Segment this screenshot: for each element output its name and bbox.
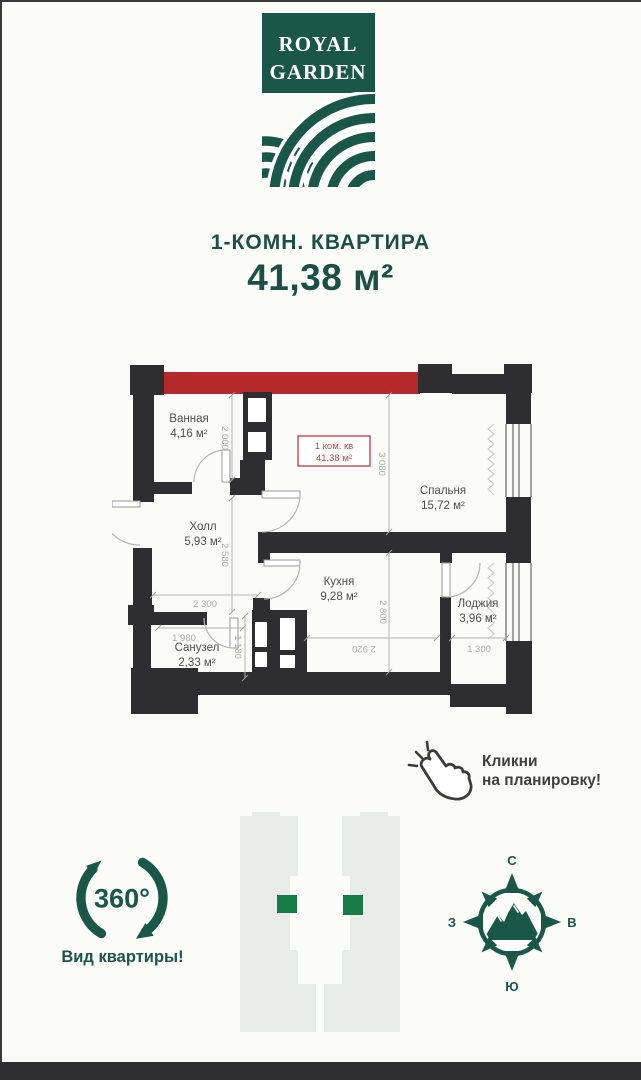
dim-2000: 2 000 xyxy=(219,426,230,450)
view-360-label: Вид квартиры! xyxy=(30,948,215,967)
dim-2580: 2 580 xyxy=(219,543,230,567)
click-hint-line2: на планировку! xyxy=(482,771,601,790)
unit-label-area: 41,38 м² xyxy=(316,453,352,464)
badge-360-text: 360° xyxy=(94,883,150,913)
room-bedroom-name: Спальня xyxy=(420,485,466,497)
view-360-button[interactable]: 360° xyxy=(66,841,178,955)
kitchen-door xyxy=(264,560,300,599)
dim-1180: 1 180 xyxy=(232,635,243,659)
screen-edge-left xyxy=(0,0,2,1080)
floor-plan[interactable]: 1 ком. кв 41,38 м² Ванная 4,16 м² Холл 5… xyxy=(112,358,538,714)
tower-left xyxy=(240,812,316,1032)
apartment-type: 1-КОМН. КВАРТИРА xyxy=(0,231,641,255)
dim-1300: 1 300 xyxy=(467,644,491,655)
logo-garden-arcs-icon xyxy=(262,99,375,187)
dim-2920: 2 920 xyxy=(352,643,376,654)
room-toilet-area: 2,33 м² xyxy=(178,657,215,669)
screen-edge-top xyxy=(0,0,641,2)
dim-3080: 3 080 xyxy=(376,452,387,476)
compass-west-label: З xyxy=(448,915,456,930)
room-kitchen-name: Кухня xyxy=(324,576,355,588)
tower-right xyxy=(324,812,400,1032)
highlighted-wall xyxy=(164,372,420,394)
dim-2800: 2 800 xyxy=(377,600,388,624)
unit-marker-left[interactable] xyxy=(277,895,297,913)
room-loggia-name: Лоджия xyxy=(458,598,499,610)
compass-south-label: Ю xyxy=(505,979,518,994)
entrance-door xyxy=(112,501,140,545)
apartment-title: 1-КОМН. КВАРТИРА 41,38 м² xyxy=(0,231,641,299)
unit-marker-right[interactable] xyxy=(343,895,363,915)
dim-1980: 1 980 xyxy=(172,633,196,644)
dim-2300: 2 300 xyxy=(193,599,217,610)
unit-label-type: 1 ком. кв xyxy=(315,441,353,452)
click-hint-text[interactable]: Кликни на планировку! xyxy=(482,752,601,790)
compass-rose: С Ю З В xyxy=(440,845,585,1003)
room-kitchen-area: 9,28 м² xyxy=(320,591,357,603)
compass-north-label: С xyxy=(507,853,517,868)
room-bathroom-name: Ванная xyxy=(169,413,208,425)
room-hall-area: 5,93 м² xyxy=(184,536,221,548)
logo-text-garden: GARDEN xyxy=(269,60,366,84)
bottom-system-bar xyxy=(0,1062,641,1080)
unit-label: 1 ком. кв 41,38 м² xyxy=(298,436,370,466)
loggia-door xyxy=(442,563,480,597)
compass-east-label: В xyxy=(567,915,576,930)
logo-text-royal: ROYAL xyxy=(279,32,358,56)
room-bedroom-area: 15,72 м² xyxy=(421,500,465,512)
bedroom-window xyxy=(488,424,531,497)
click-hand-icon xyxy=(404,738,480,806)
building-position-indicator xyxy=(236,806,404,1038)
apartment-area: 41,38 м² xyxy=(0,257,641,299)
royal-garden-logo: ROYAL GARDEN xyxy=(262,13,375,187)
mountain-icon xyxy=(483,902,541,940)
room-bathroom-area: 4,16 м² xyxy=(170,428,207,440)
click-hint-line1: Кликни xyxy=(482,752,601,771)
bathroom-door xyxy=(194,450,230,482)
room-hall-name: Холл xyxy=(189,521,216,533)
room-loggia-area: 3,96 м² xyxy=(459,613,496,625)
bedroom-door xyxy=(262,491,300,532)
